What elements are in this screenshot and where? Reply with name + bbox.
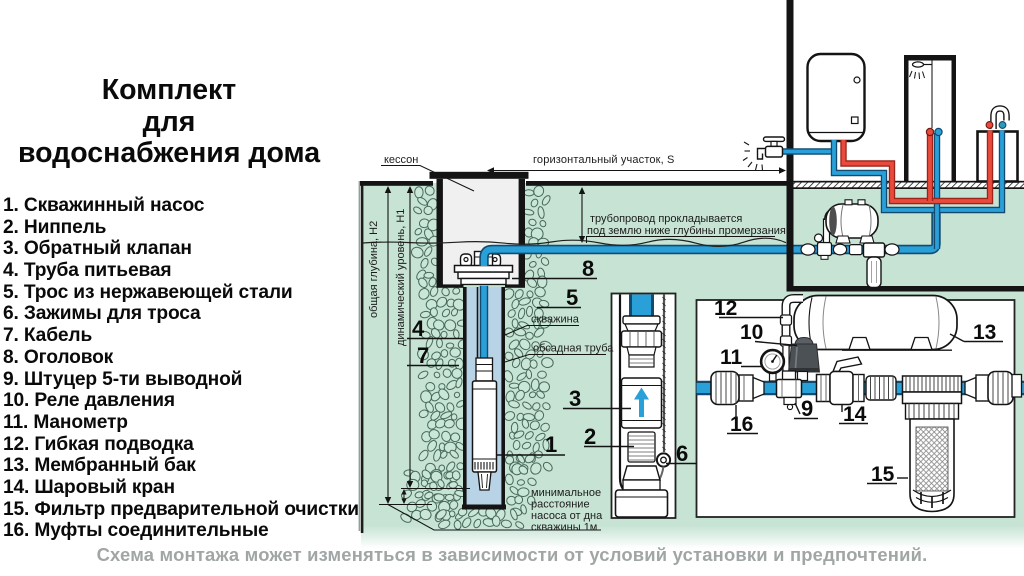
svg-text:6: 6: [676, 441, 688, 466]
svg-text:8: 8: [582, 256, 594, 281]
svg-text:трубопровод прокладывается: трубопровод прокладывается: [590, 213, 742, 225]
svg-text:12: 12: [714, 297, 737, 320]
svg-text:под землю ниже глубины промерз: под землю ниже глубины промерзания: [587, 225, 786, 237]
svg-text:1: 1: [545, 432, 557, 457]
svg-text:2: 2: [584, 424, 596, 449]
svg-text:расстояние: расстояние: [531, 499, 590, 511]
svg-text:кессон: кессон: [384, 154, 418, 166]
svg-text:10: 10: [740, 321, 763, 344]
svg-text:15: 15: [871, 463, 895, 486]
svg-text:минимальное: минимальное: [531, 487, 601, 499]
svg-text:4: 4: [412, 316, 425, 341]
svg-text:общая глубина, Н2: общая глубина, Н2: [368, 221, 380, 318]
svg-text:насоса от дна: насоса от дна: [531, 510, 603, 522]
svg-text:3: 3: [569, 386, 581, 411]
svg-text:горизонтальный участок, S: горизонтальный участок, S: [533, 154, 675, 166]
svg-text:14: 14: [843, 403, 867, 426]
svg-text:13: 13: [973, 321, 996, 344]
svg-text:обсадная труба: обсадная труба: [533, 343, 614, 355]
svg-text:динамический уровень, Н1: динамический уровень, Н1: [395, 209, 407, 346]
svg-text:5: 5: [566, 285, 578, 310]
svg-text:7: 7: [417, 343, 429, 368]
svg-text:9: 9: [801, 396, 813, 421]
svg-text:11: 11: [720, 346, 743, 369]
svg-text:скважины 1м: скважины 1м: [531, 522, 597, 534]
svg-text:16: 16: [730, 413, 753, 436]
svg-text:скважина: скважина: [531, 314, 580, 326]
